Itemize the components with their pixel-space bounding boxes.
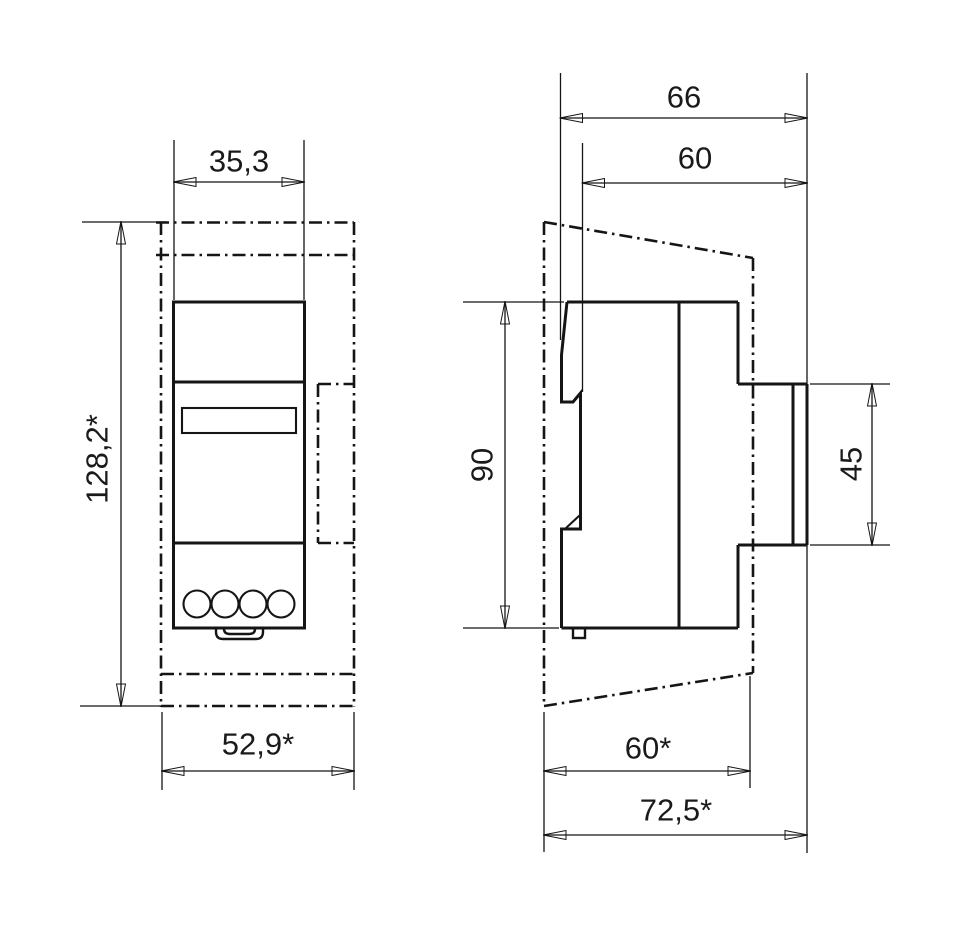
din-clip-latch <box>566 516 580 529</box>
front-view-display-window <box>182 408 296 433</box>
side-view <box>463 73 890 853</box>
button-circle <box>240 591 267 618</box>
dimension-drawing: 35,3 128,2* 52,9* 66 60 90 45 60* 72,5* <box>0 0 970 931</box>
dim-label-side-height-body: 90 <box>467 448 498 482</box>
dim-label-side-height-front-panel: 45 <box>836 447 867 481</box>
dim-label-side-depth-overall-bottom: 72,5* <box>640 795 712 826</box>
dim-label-side-depth-overall-top: 66 <box>667 82 701 113</box>
dim-side-depth-overall-top <box>561 73 808 853</box>
side-view-body-outline <box>562 302 808 628</box>
front-view-max-outline <box>156 222 354 707</box>
dim-label-front-width-bottom: 52,9* <box>222 729 294 760</box>
front-view <box>80 140 354 790</box>
dim-label-front-height-overall: 128,2* <box>82 414 113 504</box>
front-view-buttons <box>184 591 295 618</box>
button-circle <box>184 591 211 618</box>
dim-label-side-depth-body-top: 60 <box>678 143 712 174</box>
side-view-max-outline <box>544 222 753 706</box>
dim-label-side-depth-bottom: 60* <box>625 733 672 764</box>
front-view-din-clip-tab <box>216 628 263 639</box>
din-rail-profile <box>562 302 581 628</box>
button-circle <box>268 591 295 618</box>
dim-side-depth-body-top <box>583 143 808 392</box>
front-view-body-outline <box>174 302 305 628</box>
button-circle <box>212 591 239 618</box>
dim-label-front-width-top: 35,3 <box>209 146 269 177</box>
